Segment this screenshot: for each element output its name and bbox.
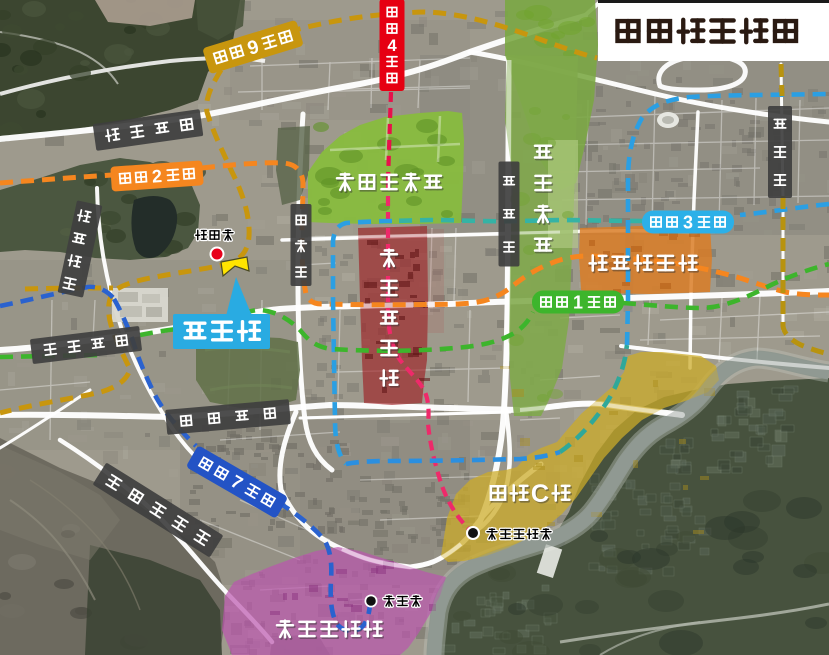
svg-text:C: C <box>531 480 549 508</box>
svg-text:4: 4 <box>387 36 397 55</box>
svg-text:3: 3 <box>683 212 693 232</box>
svg-text:1: 1 <box>573 292 583 312</box>
svg-text:2: 2 <box>151 166 162 187</box>
